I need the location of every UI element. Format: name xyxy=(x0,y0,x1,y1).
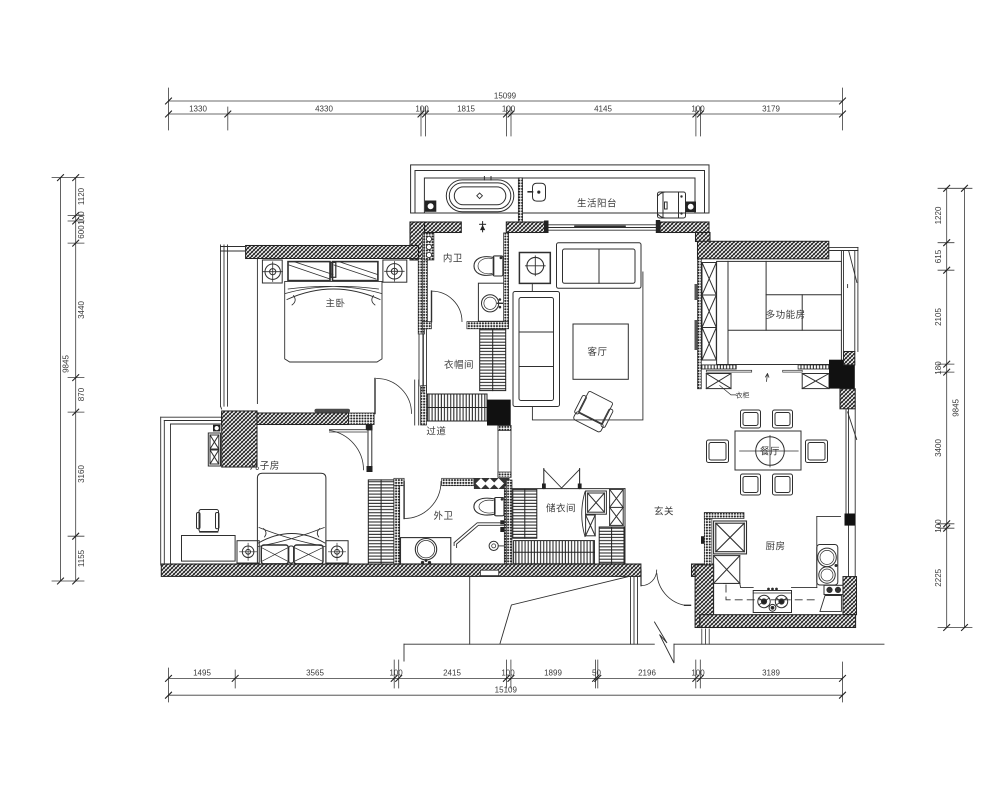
svg-text:生活阳台: 生活阳台 xyxy=(577,198,617,210)
svg-text:1120: 1120 xyxy=(77,187,86,205)
svg-text:儿子房: 儿子房 xyxy=(250,460,280,472)
svg-text:3189: 3189 xyxy=(762,669,780,678)
svg-text:4330: 4330 xyxy=(315,105,333,114)
svg-text:2196: 2196 xyxy=(638,669,656,678)
svg-text:3179: 3179 xyxy=(762,105,780,114)
svg-text:600: 600 xyxy=(77,225,86,239)
svg-text:3400: 3400 xyxy=(934,439,943,457)
svg-text:餐厅: 餐厅 xyxy=(760,446,780,458)
svg-text:100: 100 xyxy=(389,669,403,678)
svg-text:9845: 9845 xyxy=(952,398,961,416)
svg-text:9845: 9845 xyxy=(62,355,71,373)
svg-text:100: 100 xyxy=(502,105,516,114)
svg-text:2105: 2105 xyxy=(934,308,943,326)
svg-text:1155: 1155 xyxy=(77,549,86,567)
svg-text:2415: 2415 xyxy=(443,669,461,678)
svg-text:玄关: 玄关 xyxy=(654,506,674,518)
svg-text:3565: 3565 xyxy=(306,669,324,678)
svg-text:15109: 15109 xyxy=(495,686,518,695)
svg-text:180: 180 xyxy=(934,361,943,375)
svg-text:3440: 3440 xyxy=(77,301,86,319)
svg-text:1220: 1220 xyxy=(934,206,943,224)
svg-text:100: 100 xyxy=(934,519,943,533)
svg-text:内卫: 内卫 xyxy=(443,253,463,265)
svg-text:储衣间: 储衣间 xyxy=(546,503,576,515)
svg-text:100: 100 xyxy=(691,669,705,678)
svg-text:4145: 4145 xyxy=(594,105,612,114)
svg-text:1330: 1330 xyxy=(189,105,207,114)
svg-text:615: 615 xyxy=(934,249,943,263)
svg-text:100: 100 xyxy=(415,105,429,114)
svg-text:客厅: 客厅 xyxy=(587,346,607,358)
svg-text:多功能房: 多功能房 xyxy=(766,309,806,321)
svg-text:1495: 1495 xyxy=(193,669,211,678)
svg-text:主卧: 主卧 xyxy=(325,298,345,310)
svg-text:1899: 1899 xyxy=(544,669,562,678)
svg-text:过道: 过道 xyxy=(426,426,446,438)
svg-text:100: 100 xyxy=(77,211,86,225)
svg-text:15099: 15099 xyxy=(494,92,517,101)
svg-text:衣帽间: 衣帽间 xyxy=(444,359,474,371)
svg-text:870: 870 xyxy=(77,387,86,401)
svg-text:100: 100 xyxy=(691,105,705,114)
svg-text:100: 100 xyxy=(501,669,515,678)
svg-text:厨房: 厨房 xyxy=(765,541,785,553)
svg-text:50: 50 xyxy=(592,669,601,678)
svg-text:1815: 1815 xyxy=(457,105,475,114)
svg-text:2225: 2225 xyxy=(934,568,943,586)
svg-text:3160: 3160 xyxy=(77,465,86,483)
svg-text:衣柜: 衣柜 xyxy=(736,391,750,400)
svg-text:外卫: 外卫 xyxy=(433,510,453,522)
